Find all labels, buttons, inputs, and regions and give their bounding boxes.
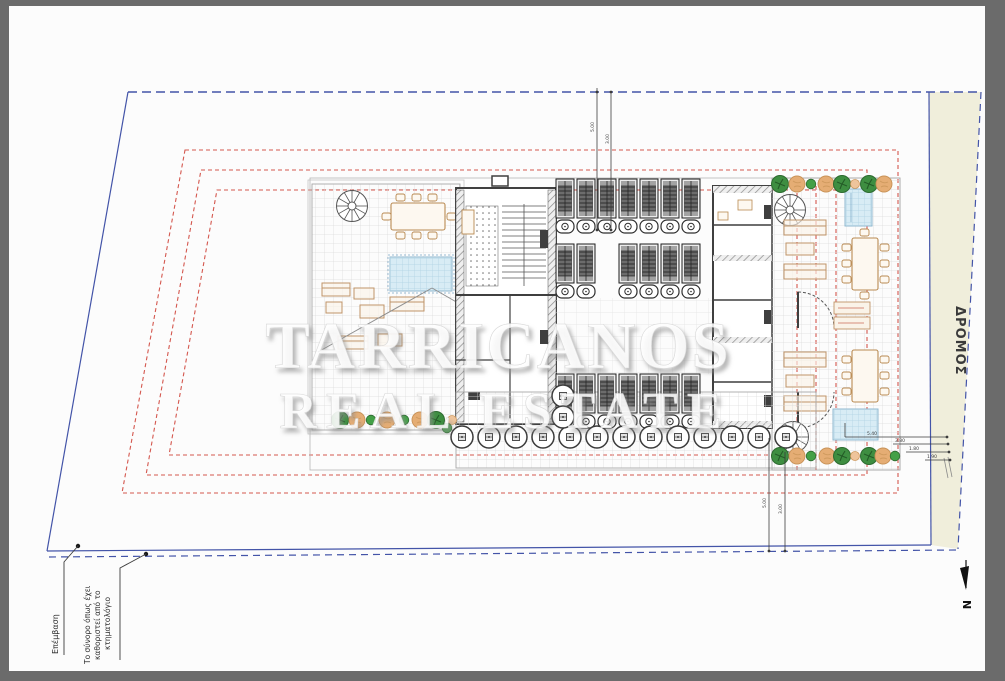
svg-text:5.40: 5.40	[867, 431, 877, 437]
round-table-icon	[640, 285, 658, 298]
spiral-stair-icon	[337, 191, 368, 222]
svg-text:5.00: 5.00	[762, 498, 768, 508]
tree-icon	[861, 176, 878, 193]
sun-lounger-icon	[661, 179, 679, 218]
tree-icon	[806, 451, 816, 461]
tree-icon	[789, 176, 805, 192]
sun-lounger-icon	[640, 179, 658, 218]
watermark-line2: REAL ESTATE	[279, 383, 730, 440]
sun-lounger-icon	[682, 179, 700, 218]
sun-lounger-icon	[619, 179, 637, 218]
road-label: ΔΡΟΜΟΣ	[952, 306, 967, 376]
svg-text:3.00: 3.00	[605, 134, 611, 144]
planter-icon	[748, 426, 770, 448]
planter-icon	[775, 426, 797, 448]
round-table-icon	[556, 220, 574, 233]
tree-icon	[818, 176, 834, 192]
tree-icon	[772, 448, 789, 465]
tree-icon	[876, 176, 892, 192]
tree-icon	[851, 452, 860, 461]
tree-icon	[890, 451, 900, 461]
tree-icon	[875, 448, 891, 464]
site-plan-drawing: ΔΡΟΜΟΣ	[0, 0, 1005, 681]
pool-left	[388, 255, 454, 293]
tree-icon	[772, 176, 789, 193]
sun-lounger-icon	[640, 244, 658, 283]
svg-text:3.80: 3.80	[895, 438, 905, 444]
tree-icon	[819, 448, 835, 464]
svg-text:1.80: 1.80	[909, 446, 919, 452]
round-table-icon	[661, 285, 679, 298]
round-table-icon	[619, 220, 637, 233]
sun-lounger-icon	[556, 244, 574, 283]
round-table-icon	[619, 285, 637, 298]
tree-icon	[834, 176, 851, 193]
round-table-icon	[661, 220, 679, 233]
sun-lounger-icon	[682, 244, 700, 283]
round-table-icon	[556, 285, 574, 298]
sun-lounger-icon	[577, 179, 595, 218]
tree-icon	[851, 180, 860, 189]
tree-icon	[806, 179, 816, 189]
sun-lounger-icon	[577, 244, 595, 283]
tree-icon	[789, 448, 805, 464]
dining-set-right-bottom	[842, 350, 889, 402]
tree-icon	[834, 448, 851, 465]
svg-text:1.90: 1.90	[927, 454, 937, 460]
north-label: N	[960, 600, 973, 609]
round-table-icon	[577, 220, 595, 233]
watermark: TARRICANOS REAL ESTATE	[265, 309, 730, 440]
svg-text:Επέμβαση: Επέμβαση	[50, 614, 60, 654]
round-table-icon	[598, 220, 616, 233]
svg-text:5.00: 5.00	[590, 122, 596, 132]
site-plan-screenshot: ΔΡΟΜΟΣ	[0, 0, 1005, 681]
round-table-icon	[682, 220, 700, 233]
pool-right-top	[845, 189, 872, 226]
round-table-icon	[577, 285, 595, 298]
round-table-icon	[682, 285, 700, 298]
round-table-icon	[640, 220, 658, 233]
sun-lounger-icon	[619, 244, 637, 283]
sun-lounger-icon	[556, 179, 574, 218]
sun-lounger-icon	[598, 179, 616, 218]
sun-lounger-icon	[661, 244, 679, 283]
svg-text:3.00: 3.00	[778, 504, 784, 514]
watermark-line1: TARRICANOS	[265, 309, 730, 383]
